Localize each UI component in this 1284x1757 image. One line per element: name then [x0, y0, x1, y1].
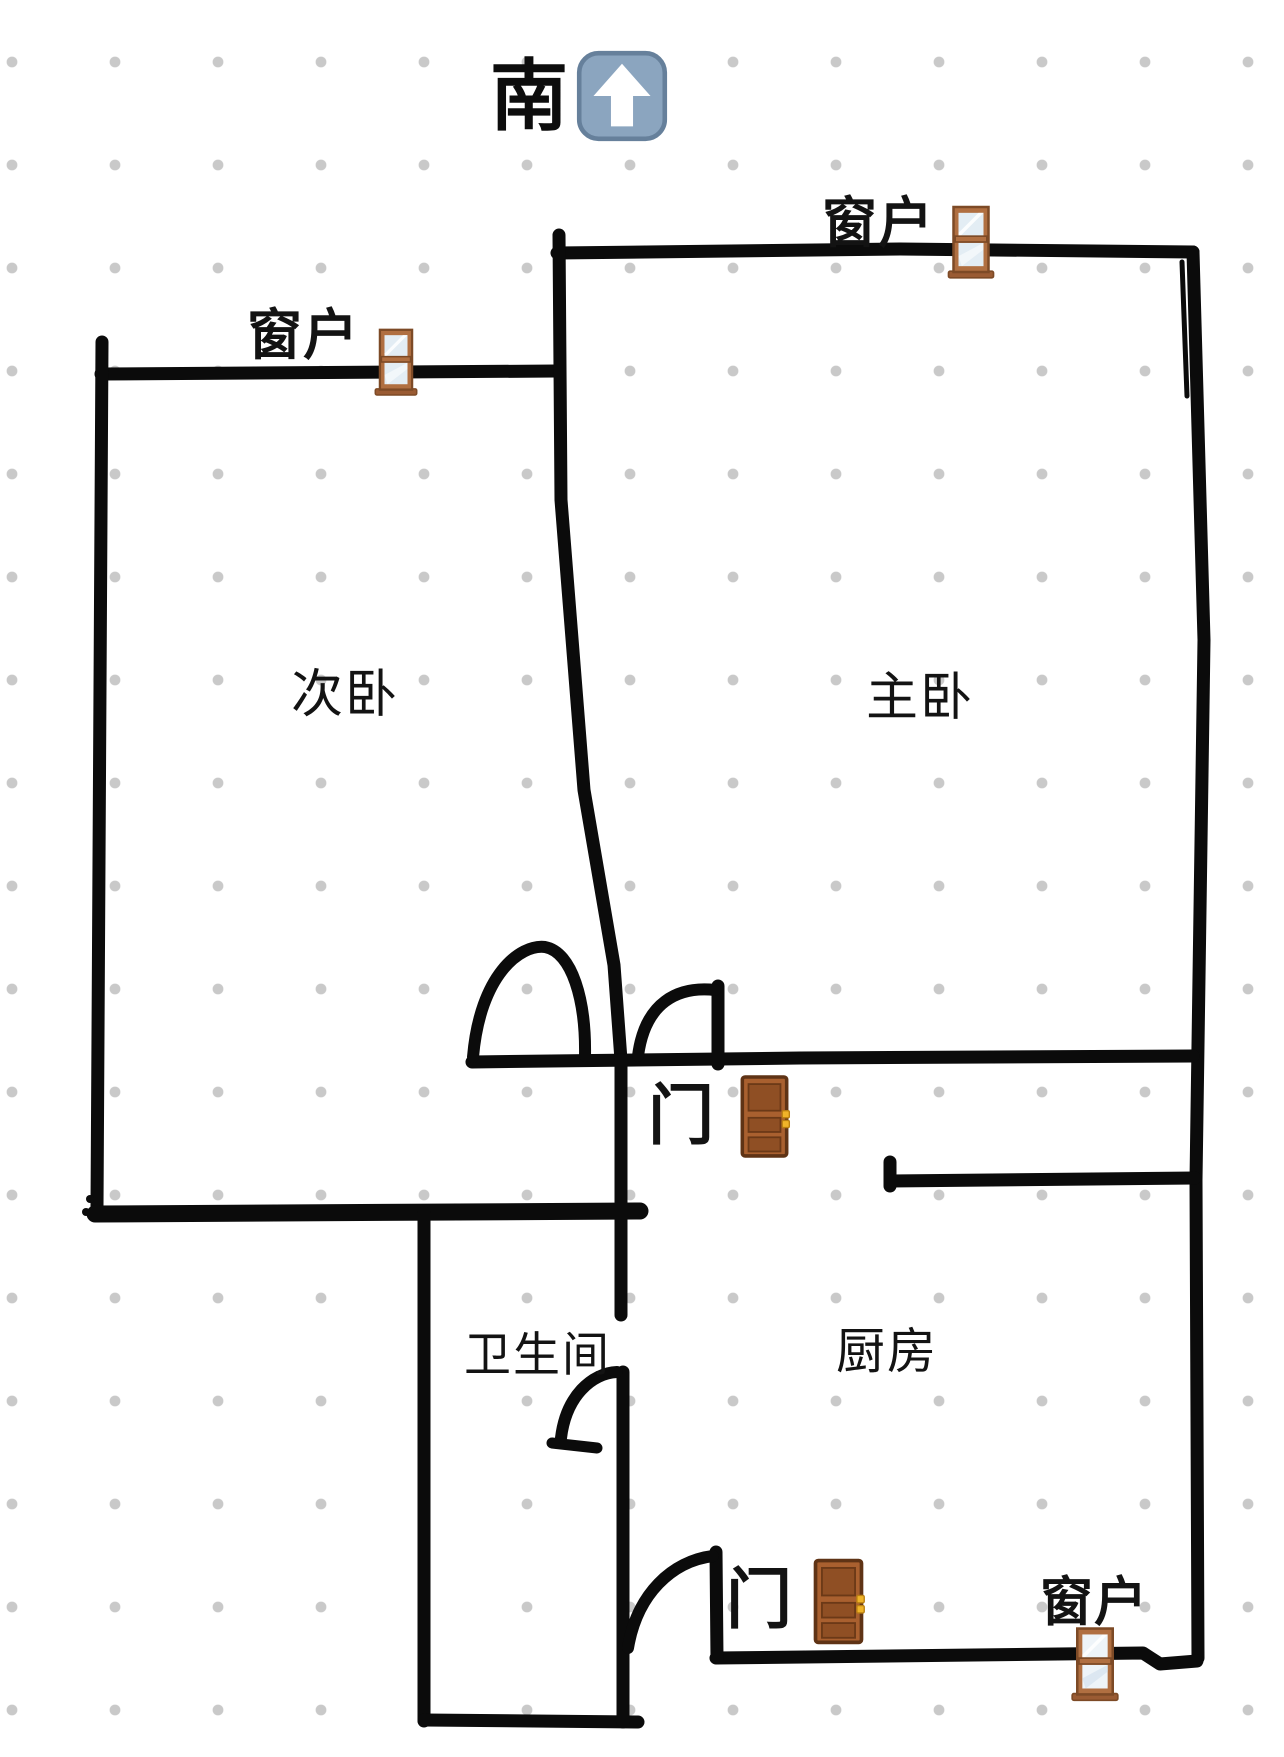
- door-label-middle: 门: [648, 1082, 715, 1148]
- entry-door-arc: [628, 1556, 713, 1648]
- up-arrow-icon: [576, 50, 668, 142]
- wall-secondary-bottom: [95, 1211, 640, 1214]
- wall-kitchen-bottom: [716, 1653, 1197, 1664]
- wall-kitchen-top: [890, 1178, 1195, 1181]
- window-label-bottom: 窗户: [1040, 1576, 1148, 1629]
- floor-plan-canvas: 南 窗户 窗户 窗户: [0, 0, 1284, 1757]
- wall-left: [97, 342, 102, 1207]
- wall-bathroom-bottom: [424, 1720, 638, 1722]
- bathroom-door-arc: [561, 1372, 617, 1438]
- door-icon-middle: [737, 1070, 792, 1167]
- bathroom-door-end: [552, 1443, 597, 1448]
- wall-middle: [559, 235, 621, 1060]
- wall-right: [1193, 252, 1204, 1658]
- room-label-master-bedroom: 主卧: [866, 672, 974, 724]
- window-label-left: 窗户: [247, 308, 359, 363]
- window-icon-bottom: [1069, 1626, 1121, 1707]
- wall-right-double-stroke: [1182, 262, 1187, 396]
- master-door-arc: [638, 989, 715, 1056]
- pen-dot: [86, 1195, 94, 1203]
- room-label-kitchen: 厨房: [836, 1328, 938, 1377]
- wall-secondary-top: [101, 371, 556, 374]
- door-icon-bottom: [810, 1554, 867, 1653]
- window-icon-left: [373, 326, 419, 403]
- door-label-bottom: 门: [726, 1566, 793, 1632]
- window-label-top: 窗户: [822, 196, 934, 251]
- compass: 南: [490, 50, 668, 142]
- floor-plan-walls: [0, 0, 1284, 1757]
- hall-arch: [473, 947, 585, 1057]
- pen-dot: [82, 1208, 90, 1216]
- room-label-bathroom: 卫生间: [464, 1331, 611, 1378]
- compass-direction-label: 南: [490, 57, 568, 135]
- entry-door-leaf: [716, 1552, 717, 1658]
- room-label-secondary-bedroom: 次卧: [291, 669, 399, 721]
- window-icon-top: [946, 204, 996, 285]
